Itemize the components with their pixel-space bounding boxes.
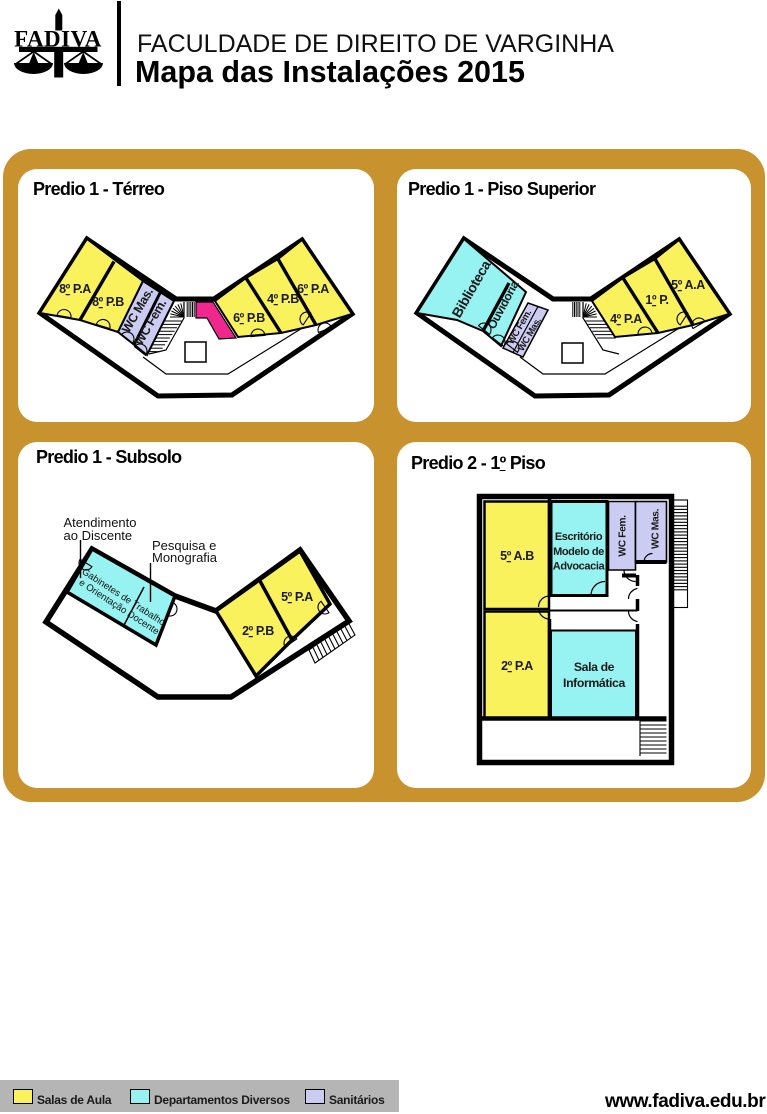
svg-text:4º P.A: 4º P.A (610, 312, 642, 326)
svg-text:6º P.B: 6º P.B (233, 311, 265, 325)
svg-text:Modelo de: Modelo de (553, 546, 604, 558)
svg-text:4º P.B: 4º P.B (267, 292, 299, 306)
svg-text:6º P.A: 6º P.A (297, 282, 329, 296)
svg-text:ao Discente: ao Discente (64, 528, 133, 543)
svg-text:Informática: Informática (563, 676, 625, 690)
svg-text:8º P.B: 8º P.B (92, 295, 124, 309)
svg-text:Escritório: Escritório (555, 531, 603, 543)
svg-text:8º P.A: 8º P.A (59, 282, 91, 296)
svg-text:5º A.B: 5º A.B (500, 549, 534, 563)
svg-text:1º P.: 1º P. (645, 293, 668, 307)
svg-text:Advocacia: Advocacia (553, 561, 606, 573)
svg-text:Monografia: Monografia (152, 550, 218, 565)
svg-text:Sala de: Sala de (574, 660, 615, 674)
svg-text:5º A.A: 5º A.A (671, 278, 705, 292)
svg-text:5º P.A: 5º P.A (281, 590, 313, 604)
svg-text:2º P.A: 2º P.A (501, 659, 533, 673)
svg-text:WC Mas.: WC Mas. (651, 508, 662, 549)
svg-text:WC Fem.: WC Fem. (618, 515, 629, 557)
svg-text:2º P.B: 2º P.B (242, 624, 274, 638)
